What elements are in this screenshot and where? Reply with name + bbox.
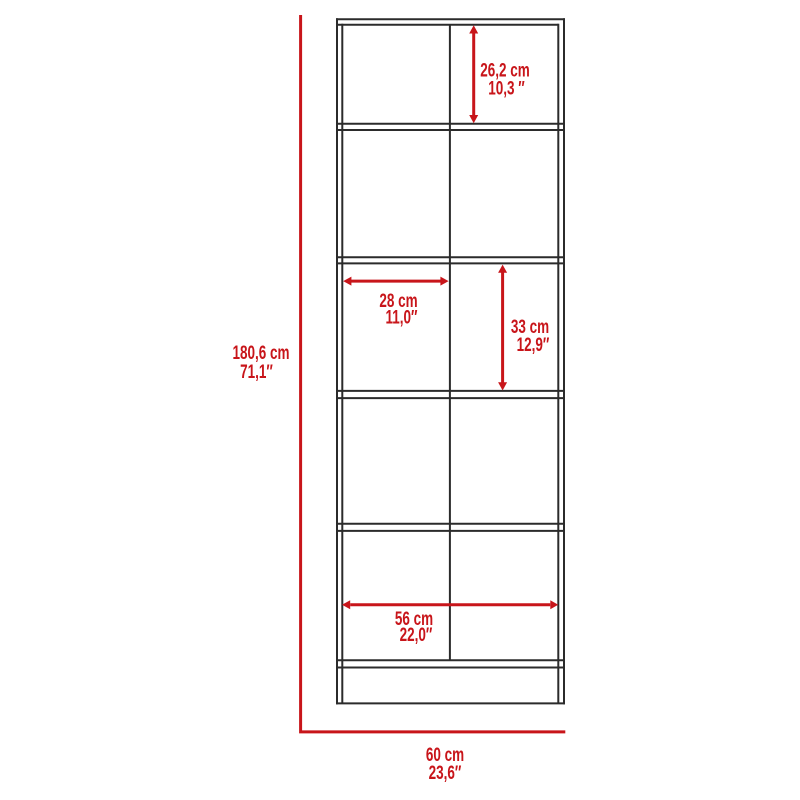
svg-text:11,0″: 11,0″ bbox=[386, 306, 418, 328]
svg-text:71,1″: 71,1″ bbox=[240, 361, 273, 383]
svg-text:12,9″: 12,9″ bbox=[517, 334, 550, 356]
svg-text:10,3 ″: 10,3 ″ bbox=[488, 77, 525, 99]
svg-text:22,0″: 22,0″ bbox=[400, 624, 433, 646]
svg-text:23,6″: 23,6″ bbox=[429, 762, 462, 784]
